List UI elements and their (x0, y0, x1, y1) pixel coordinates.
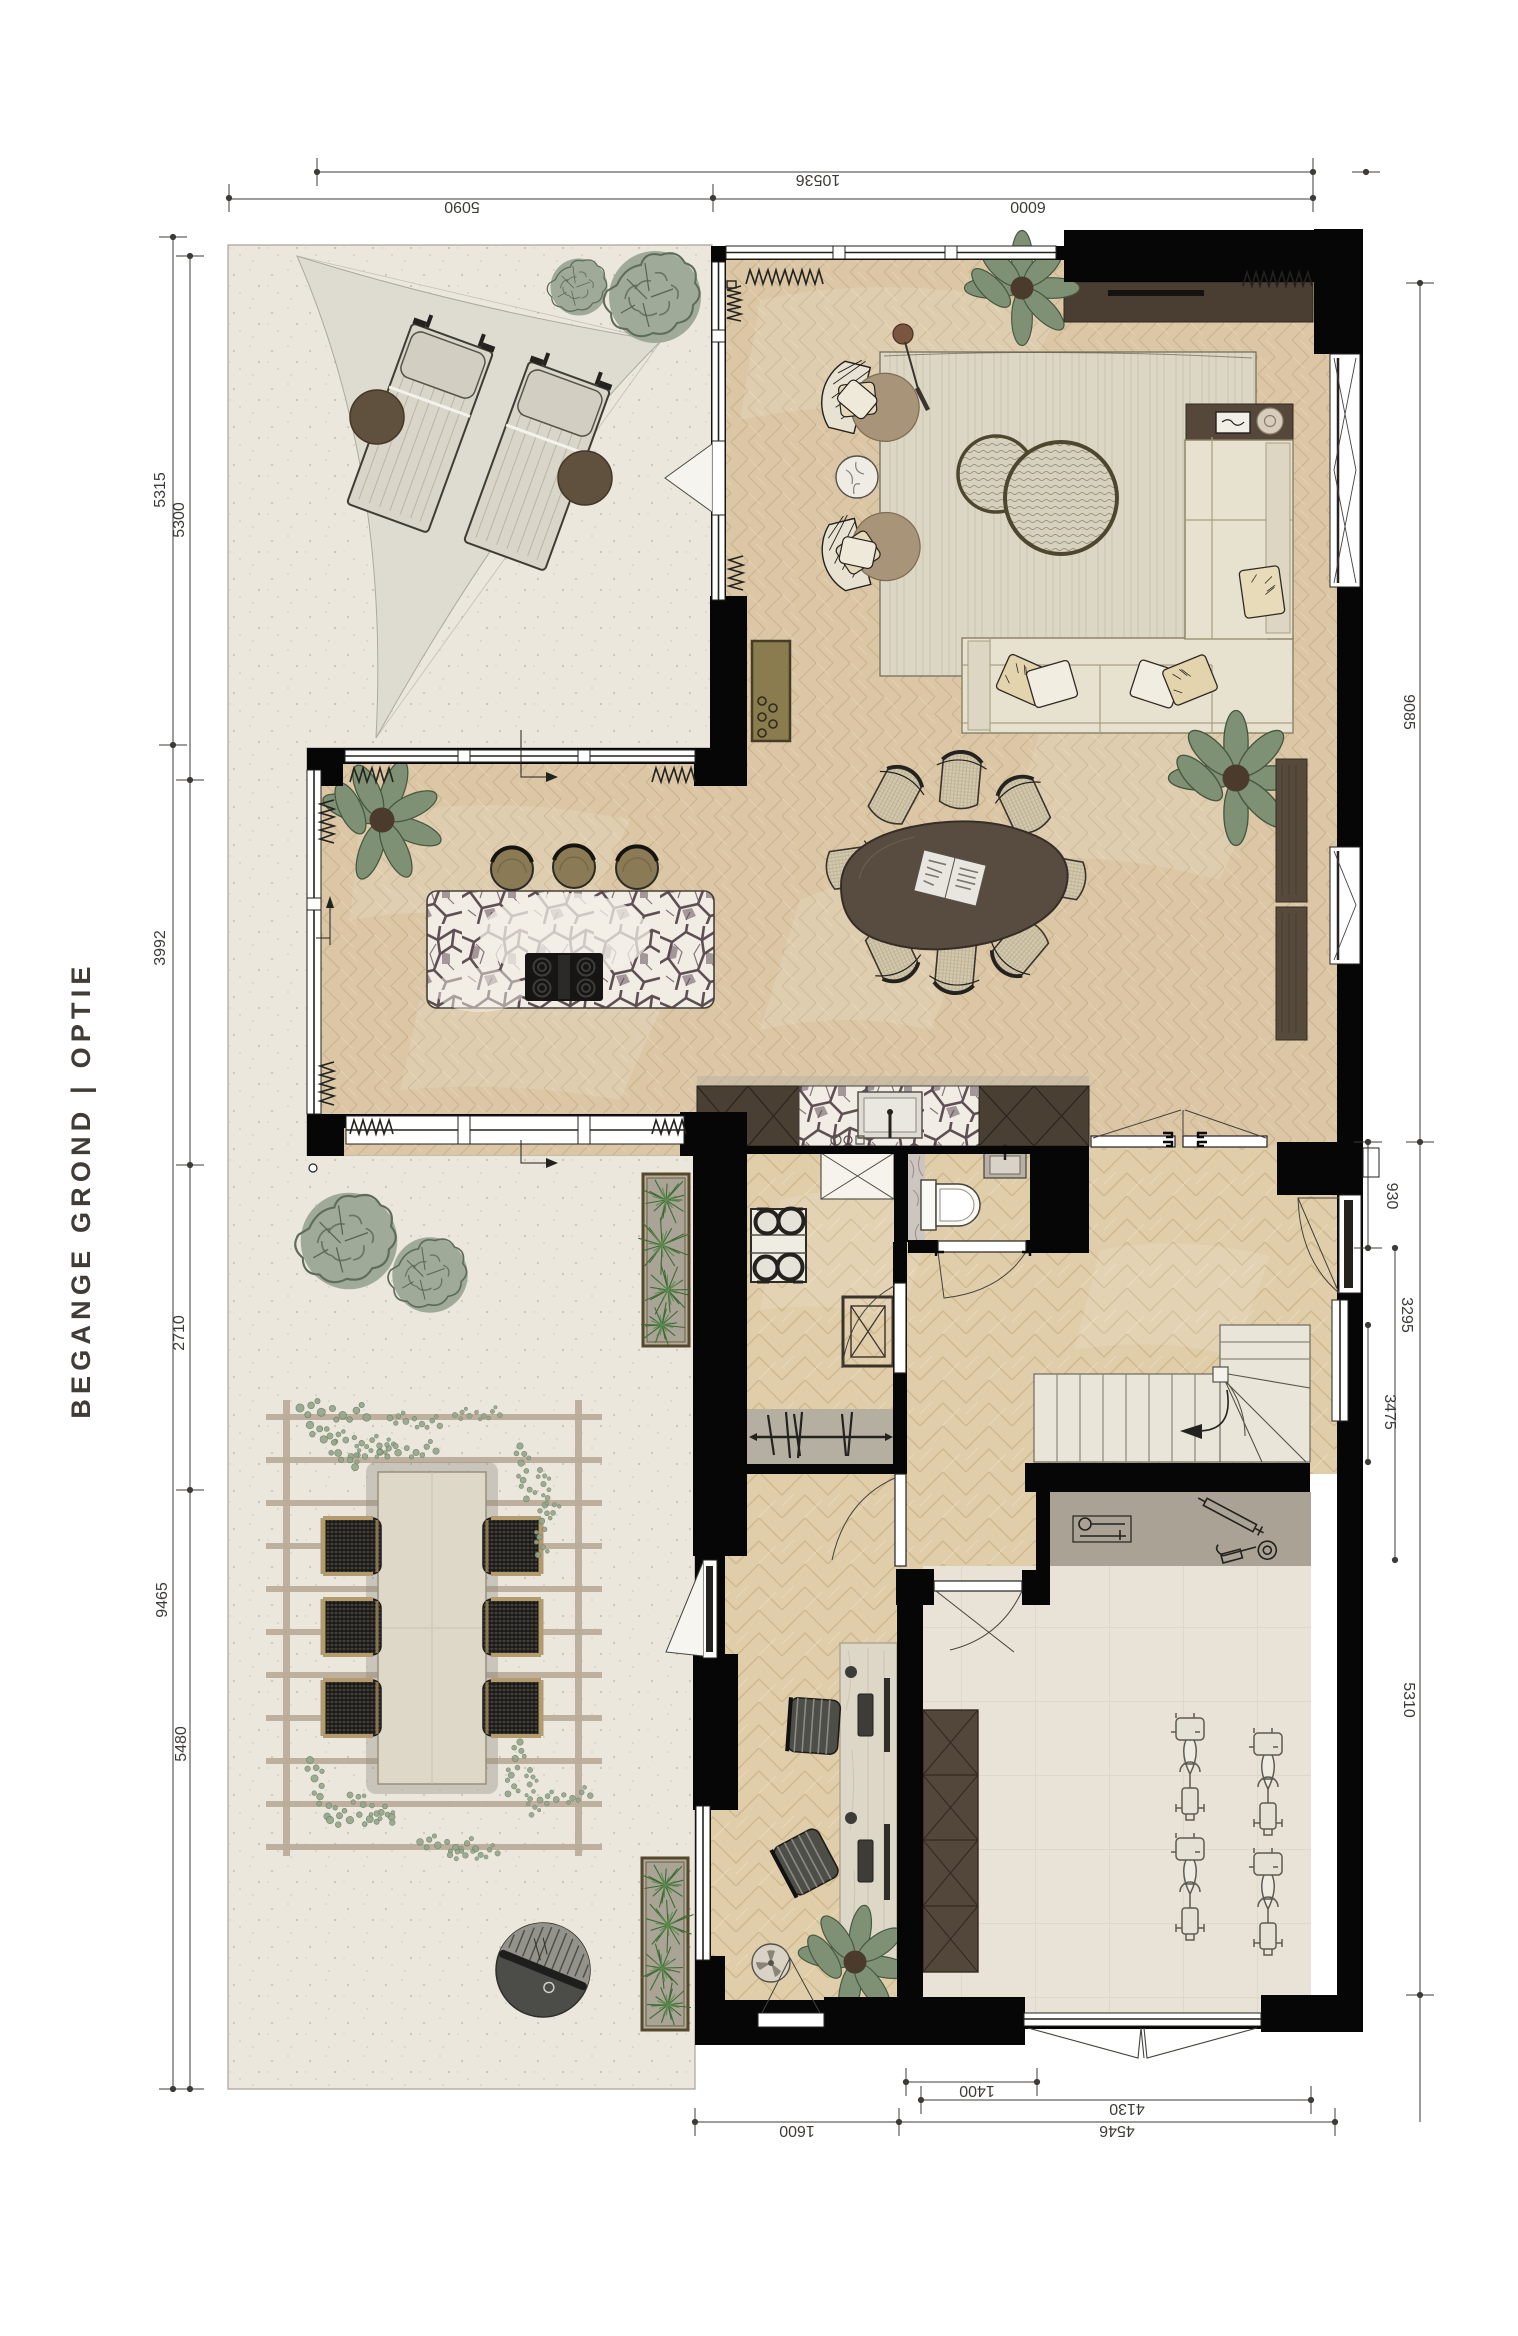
svg-text:3475: 3475 (1381, 1394, 1398, 1430)
svg-text:3295: 3295 (1398, 1297, 1415, 1333)
svg-text:2710: 2710 (171, 1315, 188, 1351)
svg-text:1600: 1600 (779, 2122, 815, 2139)
svg-text:5300: 5300 (171, 502, 188, 538)
svg-text:5090: 5090 (444, 198, 480, 215)
svg-text:10536: 10536 (796, 171, 841, 188)
svg-text:930: 930 (1383, 1183, 1400, 1210)
svg-text:5310: 5310 (1400, 1682, 1417, 1718)
svg-text:4546: 4546 (1099, 2122, 1135, 2139)
svg-text:5480: 5480 (173, 1726, 190, 1762)
svg-text:BEGANGE GROND | OPTIE: BEGANGE GROND | OPTIE (66, 961, 96, 1418)
svg-text:3992: 3992 (152, 930, 169, 966)
svg-text:4130: 4130 (1109, 2100, 1145, 2117)
svg-text:6000: 6000 (1010, 198, 1046, 215)
svg-text:9085: 9085 (1400, 694, 1417, 730)
svg-text:1400: 1400 (959, 2082, 995, 2099)
svg-text:5315: 5315 (152, 472, 169, 508)
svg-text:9465: 9465 (154, 1582, 171, 1618)
